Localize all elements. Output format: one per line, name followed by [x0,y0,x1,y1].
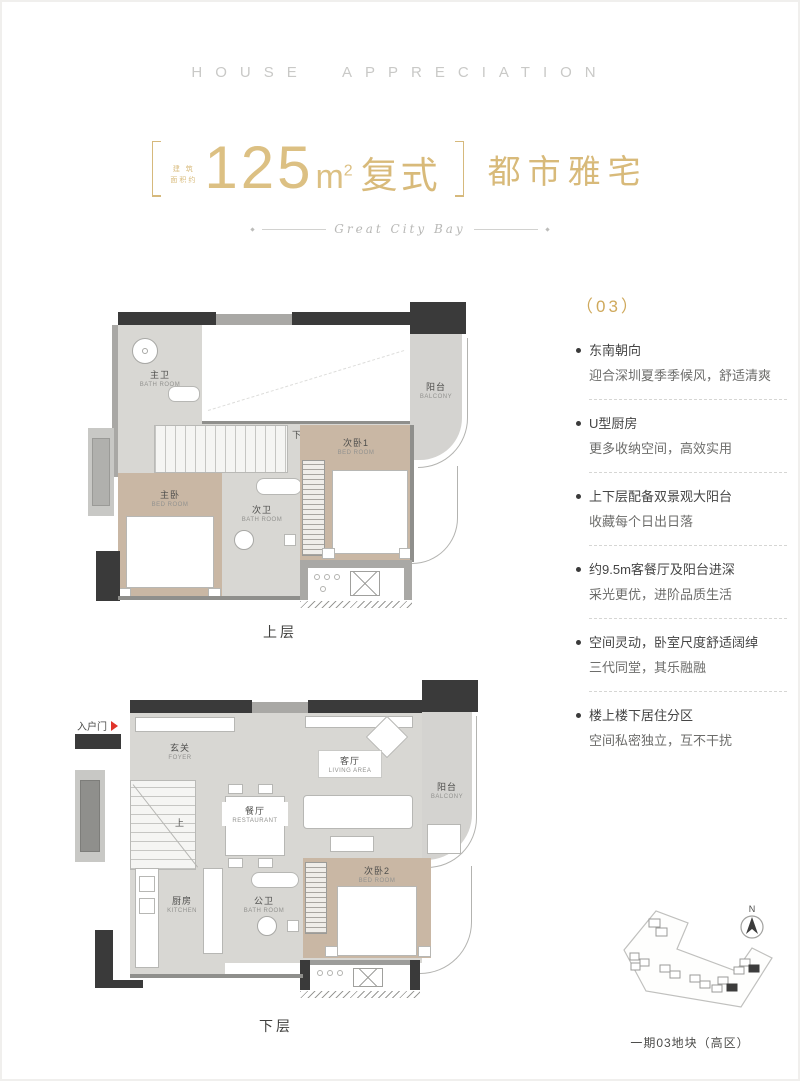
bed [337,886,417,956]
sink-icon [234,530,254,550]
feature-desc: 采光更优，进阶品质生活 [576,585,794,605]
feature-desc: 迎合深圳夏季季候风，舒适清爽 [576,366,794,386]
side-unit [80,780,100,852]
feature-desc: 更多收纳空间，高效实用 [576,439,794,459]
feature-divider [589,472,787,473]
vent-dot-icon [320,586,326,592]
upper-floor-plan: 主卫 BATH ROOM 阳台 BALCONY 下 主卧 BED ROOM 次卫… [88,298,472,610]
wall [95,980,143,988]
feature-item: 楼上楼下居住分区 空间私密独立，互不干扰 [576,706,794,750]
foyer-cabinet [135,717,235,732]
diamond-icon [251,227,255,231]
wall [410,960,420,990]
staircase [154,425,288,473]
feature-title: U型厨房 [589,414,637,434]
site-plan-map: N [600,903,780,1025]
bathtub [256,478,302,495]
wall [130,700,252,713]
wall [216,314,292,325]
area-unit: m2 [315,158,352,197]
site-plan: N 一期03地块（高区） [600,903,780,1051]
shower-drain-icon [142,348,148,354]
feature-divider [589,618,787,619]
feature-divider [589,691,787,692]
vent-dot-icon [324,574,330,580]
site-plan-caption: 一期03地块（高区） [600,1034,780,1051]
bullet-icon [576,348,581,353]
title-block: 建 筑 面积约 125 m2 复式 都市雅宅 [0,138,800,199]
wall [130,974,303,978]
vent-dot-icon [337,970,343,976]
script-divider: Great City Bay [0,222,800,236]
feature-item: 空间灵动，卧室尺度舒适阔绰 三代同堂，其乐融融 [576,633,794,677]
stove-icon [139,876,155,892]
title-left-bracket [152,141,161,197]
sofa [303,795,413,829]
feature-panel: （03） 东南朝向 迎合深圳夏季季候风，舒适清爽 U型厨房 更多收纳空间，高效实… [576,292,794,750]
wall [252,702,308,713]
bullet-icon [576,494,581,499]
feature-title: 上下层配备双景观大阳台 [589,487,732,507]
area-number-group: 125 m2 复式 [204,138,454,199]
bullet-icon [576,421,581,426]
page-header-text: HOUSE APPRECIATION [0,64,800,81]
lower-plan-caption: 下层 [75,1016,477,1036]
chair [228,858,243,868]
north-compass-icon: N [741,904,763,938]
ac-unit-icon [353,968,383,987]
divider-line [262,229,326,230]
stair-direction-label: 上 [175,816,184,829]
bed [126,516,214,588]
side-unit [92,438,110,506]
ac-unit-icon [350,571,380,596]
area-note: 建 筑 面积约 [170,151,197,186]
feature-item: 东南朝向 迎合深圳夏季季候风，舒适清爽 [576,341,794,385]
feature-item: U型厨房 更多收纳空间，高效实用 [576,414,794,458]
chair [258,784,273,794]
bullet-icon [576,640,581,645]
feature-item: 上下层配备双景观大阳台 收藏每个日出日落 [576,487,794,531]
hatch-edge [300,601,412,608]
title-divider [455,141,464,197]
sink-icon [257,916,277,936]
hatch-edge [300,991,420,998]
page-subtitle: 都市雅宅 [488,145,648,193]
wall [422,680,478,712]
sink-icon [139,898,155,914]
wall [292,312,410,325]
feature-divider [589,545,787,546]
entry-arrow-icon [111,721,118,731]
balcony-railing [418,338,468,468]
wall [202,421,410,424]
feature-desc: 三代同堂，其乐融融 [576,658,794,678]
vent-dot-icon [334,574,340,580]
wall [410,302,466,334]
wall [75,734,121,749]
upper-plan-caption: 上层 [88,622,472,642]
balcony-cabinet [427,824,461,854]
facade-curve [412,466,458,564]
feature-title: 空间灵动，卧室尺度舒适阔绰 [589,633,758,653]
bed [332,470,408,554]
nightstand [325,946,338,957]
wall [300,560,308,600]
wall [96,551,120,601]
feature-desc: 收藏每个日出日落 [576,512,794,532]
coffee-table [330,836,374,852]
void-area [202,325,410,423]
area-number: 125 [204,138,313,198]
toilet [287,920,299,932]
toilet [284,534,296,546]
diamond-icon [545,227,549,231]
feature-title: 东南朝向 [589,341,641,361]
divider-line [474,229,538,230]
vent-dot-icon [317,970,323,976]
area-unit-sup: 2 [344,163,353,180]
north-label: N [749,904,756,914]
script-text: Great City Bay [334,222,465,236]
wardrobe [305,862,327,934]
bathtub [251,872,299,888]
facade-curve [420,866,472,974]
feature-desc: 空间私密独立，互不干扰 [576,731,794,751]
lower-floor-plan: 入户门 玄关 FOYER 客厅 LIVING AREA 餐厅 RESTAURAN… [75,676,477,1006]
nightstand [322,548,335,559]
feature-title: 楼上楼下居住分区 [589,706,693,726]
feature-index: （03） [576,292,794,317]
entry-door-label: 入户门 [77,718,107,733]
chair [258,858,273,868]
wardrobe [302,460,325,556]
entry-door-marker: 入户门 [77,718,118,733]
bathtub [168,386,200,402]
vent-dot-icon [314,574,320,580]
wall [300,560,412,568]
feature-title: 约9.5m客餐厅及阳台进深 [589,560,735,580]
kitchen-island [203,868,223,954]
room-label-living: 客厅 LIVING AREA [318,750,382,778]
wall [118,312,216,325]
area-note-line1: 建 筑 [173,166,195,173]
area-note-line2: 面积约 [170,177,197,184]
area-type-label: 复式 [361,145,441,199]
wall [404,560,412,600]
bullet-icon [576,713,581,718]
vent-dot-icon [327,970,333,976]
wall [118,596,300,600]
room-label-dining: 餐厅 RESTAURANT [222,802,288,826]
feature-item: 约9.5m客餐厅及阳台进深 采光更优，进阶品质生活 [576,560,794,604]
feature-divider [589,399,787,400]
bullet-icon [576,567,581,572]
wall [308,700,422,713]
chair [228,784,243,794]
